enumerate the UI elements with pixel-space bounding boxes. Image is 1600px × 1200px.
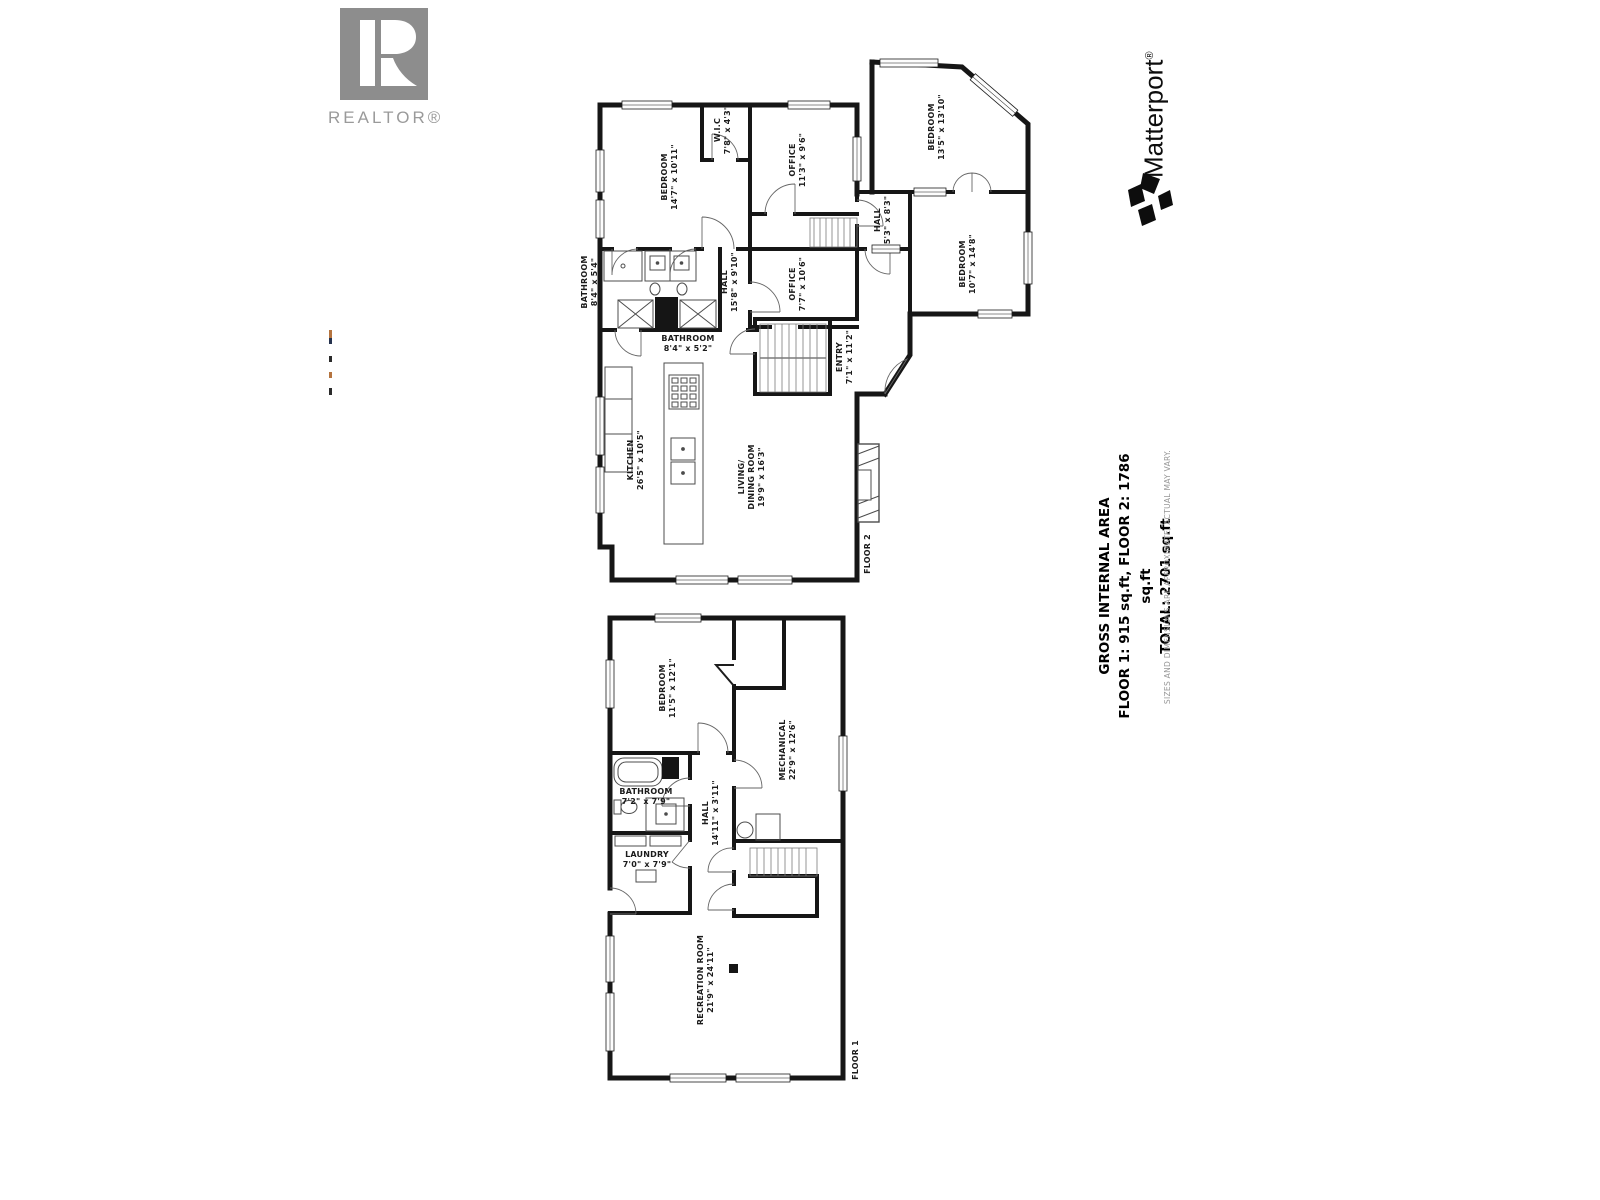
room-label-bedroom-c: BEDROOM10'7" x 14'8" (958, 234, 977, 294)
floor1-label: FLOOR 1 (851, 1040, 860, 1080)
room-label-bedroom-a: BEDROOM14'7" x 10'11" (660, 144, 679, 210)
summary-disclaimer: SIZES AND DIMENSIONS ARE APPROXIMATE, AC… (1163, 437, 1175, 717)
room-label-bathroom-b: BATHROOM8'4" x 5'2" (661, 334, 714, 353)
floor1-stairs (750, 848, 817, 876)
floor1-inner-walls (610, 618, 843, 916)
realtor-caption: REALTOR® (328, 108, 440, 128)
wall-block (662, 757, 679, 779)
realtor-logo: REALTOR® (328, 8, 440, 128)
floor1-plan: BEDROOM11'5" x 12'1" MECHANICAL22'9" x 1… (598, 608, 868, 1093)
room-label-wic: W.I.C7'8" x 4'3" (713, 106, 732, 154)
room-label-office-a: OFFICE11'3" x 9'6" (788, 133, 807, 187)
floor2-fixtures (604, 251, 879, 544)
room-label-living-dining: LIVING/DINING ROOM19'9" x 16'3" (737, 444, 766, 509)
room-label-office-b: OFFICE7'7" x 10'6" (788, 257, 807, 311)
floorplan-page: REALTOR® Matterport® (0, 0, 1600, 1200)
floor2-plan: BEDROOM14'7" x 10'11" W.I.C7'8" x 4'3" O… (570, 42, 1040, 600)
room-label-laundry: LAUNDRY7'0" x 7'9" (623, 850, 671, 869)
room-label-bedroom: BEDROOM11'5" x 12'1" (658, 658, 677, 718)
room-label-mechanical: MECHANICAL22'9" x 12'6" (778, 719, 797, 780)
matterport-wordmark: Matterport® (1133, 18, 1167, 178)
summary-title: GROSS INTERNAL AREA (1095, 436, 1115, 736)
closet-door (716, 665, 734, 686)
room-label-hall-upper: HALL5'3" x 8'3" (873, 196, 892, 244)
room-label-entry: ENTRY7'1" x 11'2" (835, 330, 854, 384)
summary-floors: FLOOR 1: 915 sq.ft, FLOOR 2: 1786 sq.ft (1115, 436, 1156, 736)
matterport-icon (1124, 170, 1180, 232)
floor2-label: FLOOR 2 (863, 534, 872, 574)
registered-mark: ® (1144, 51, 1156, 59)
wall-block (655, 297, 678, 330)
room-label-kitchen: KITCHEN26'5" x 10'5" (626, 430, 645, 490)
room-label-bathroom: BATHROOM7'2" x 7'9" (619, 787, 672, 806)
scan-artifact (329, 318, 332, 403)
realtor-logo-icon (340, 8, 428, 100)
fireplace (858, 444, 879, 522)
support-post (729, 964, 738, 973)
room-label-bathroom-a: BATHROOM8'4" x 5'4" (580, 255, 599, 308)
room-label-recreation: RECREATION ROOM21'9" x 24'11" (696, 935, 715, 1025)
room-label-bedroom-b: BEDROOM13'5" x 13'10" (927, 94, 946, 160)
room-label-hall: HALL14'11" x 3'11" (701, 780, 720, 846)
area-summary: GROSS INTERNAL AREA FLOOR 1: 915 sq.ft, … (1095, 436, 1159, 736)
room-label-hall-main: HALL15'8" x 9'10" (720, 252, 739, 312)
